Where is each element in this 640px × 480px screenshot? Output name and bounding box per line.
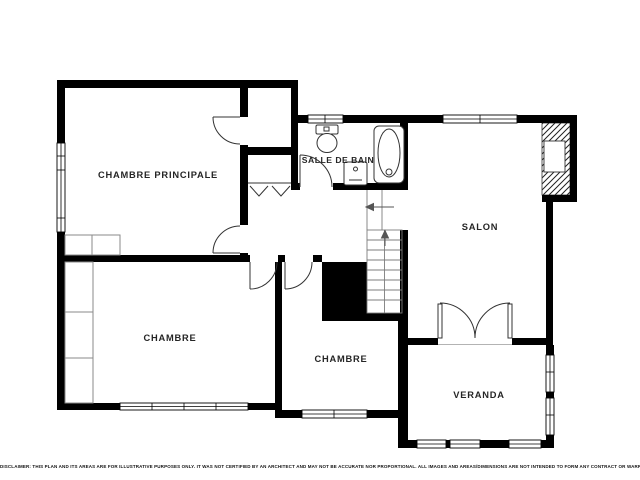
bedroom-left-closet [65, 262, 93, 403]
room-label-veranda: VERANDA [453, 390, 505, 400]
room-label-bathroom: SALLE DE BAIN [302, 155, 374, 165]
room-label-bedroom-left: CHAMBRE [143, 333, 196, 343]
chimney-hatch [542, 123, 570, 195]
sink-icon [344, 162, 367, 185]
window-bathroom [308, 115, 343, 123]
floor-plan-page: 2EÉTAGE [0, 0, 640, 480]
void-block [322, 262, 367, 313]
window-salon-top [443, 115, 517, 123]
room-label-salon: SALON [462, 222, 499, 232]
window-bedroom-left-bottom [120, 403, 248, 410]
bathtub-icon [374, 126, 404, 183]
room-label-master-bedroom: CHAMBRE PRINCIPALE [98, 170, 218, 180]
disclaimer-text: DISCLAIMER: THIS PLAN AND ITS AREAS ARE … [0, 464, 640, 469]
master-closet [65, 235, 120, 255]
window-master-left [57, 143, 65, 232]
window-veranda-bottom [417, 440, 541, 448]
floor-plan-drawing: CHAMBRE PRINCIPALE SALLE DE BAIN SALON C… [0, 0, 640, 480]
toilet-icon [316, 125, 338, 153]
window-bedroom-center-bottom [302, 410, 367, 418]
room-label-bedroom-center: CHAMBRE [314, 354, 367, 364]
